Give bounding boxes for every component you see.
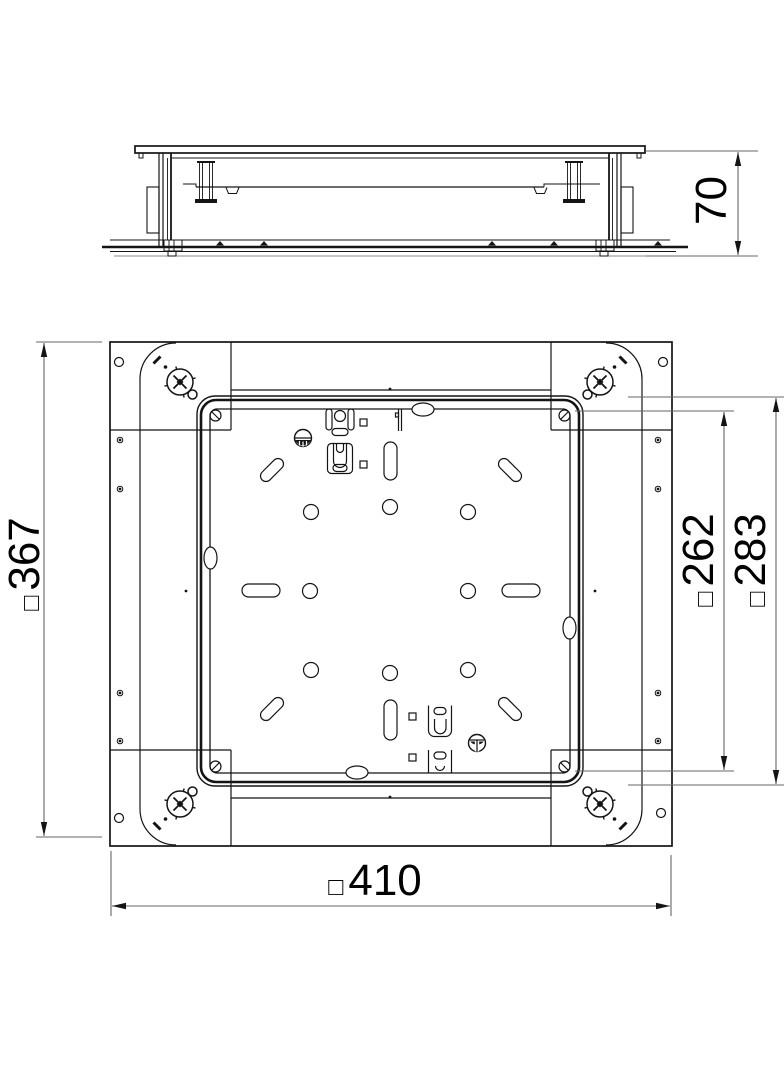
side-view-flange [102,240,688,256]
drawing-canvas [0,0,784,1066]
square-symbol: □ [693,592,718,607]
side-view-left-bracket [195,162,217,203]
dimension-value-depth: 70 [690,176,734,225]
dimension-label-frame-height: □367 [3,517,47,611]
plan-view [110,342,672,846]
outer-frame [110,342,672,846]
dimension-value-plate: 262 [677,513,721,586]
corner-fasteners [154,357,627,830]
dimension-label-overall: □410 [328,859,422,903]
plate-holes-circles [303,500,476,681]
top-pin [396,409,402,431]
cassette-frame [197,396,583,786]
bottom-clips [429,706,452,773]
side-view-right-bracket [563,162,585,203]
top-clip [326,409,354,436]
earth-terminal-bottom [469,735,486,752]
plate-holes-slots [242,442,540,740]
dimension-label-plate: □262 [677,513,721,607]
square-symbol: □ [328,875,343,900]
side-view [102,146,688,256]
mid-bracket-clip [328,444,353,474]
dimension-label-cassette: □283 [729,513,773,607]
cassette-corner-screws [210,410,570,772]
side-view-lid [135,146,645,153]
plate-holes-squares [360,419,416,761]
dimension-label-depth: 70 [690,176,734,230]
plate-edge-notches [204,403,576,779]
dimension-value-cassette: 283 [729,513,773,586]
mounting-plate [210,409,570,773]
dimension-value-frame-height: 367 [3,517,47,590]
technical-drawing-page: 70 □367 □262 □283 □410 [0,0,784,1066]
square-symbol: □ [745,592,770,607]
earth-terminal-top [295,430,312,447]
square-symbol: □ [19,596,44,611]
dimension-value-overall: 410 [348,859,421,903]
